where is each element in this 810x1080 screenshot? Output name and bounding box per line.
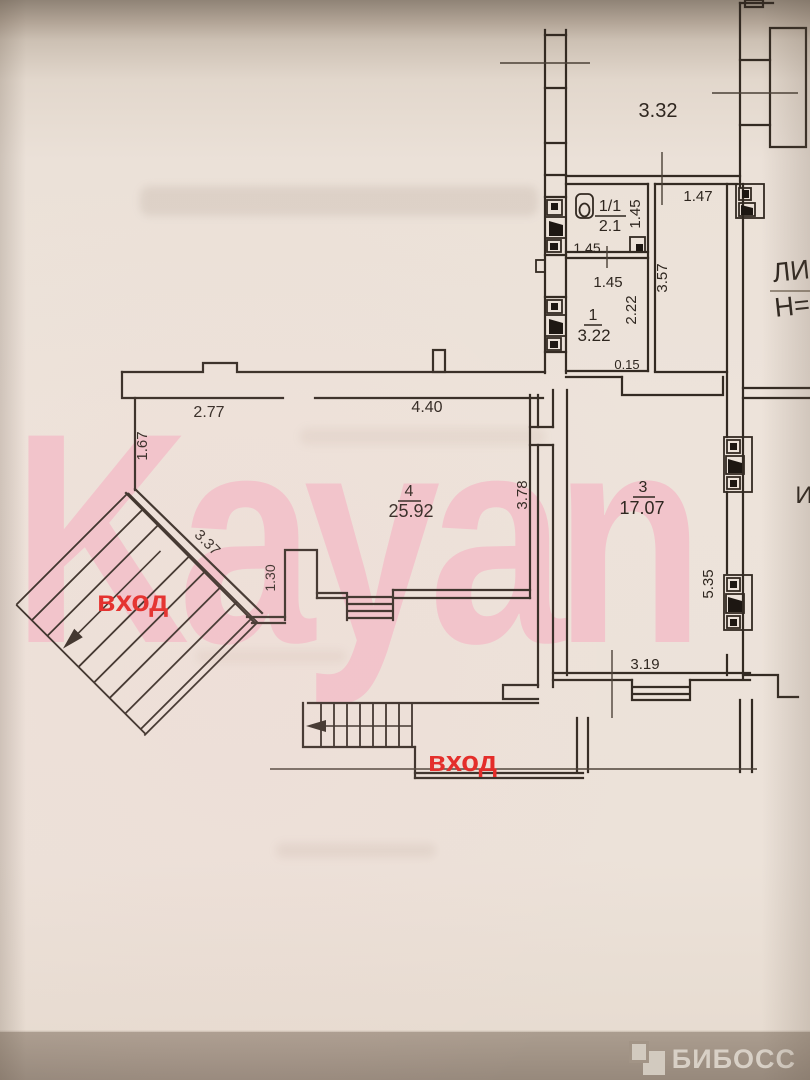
note-side: И bbox=[795, 482, 810, 509]
entrance-label-left: вход bbox=[97, 585, 168, 619]
floor-plan-scan: Kayan bbox=[0, 0, 810, 1080]
room-3-number: 3 bbox=[639, 479, 648, 496]
dim-room4-left: 1.67 bbox=[134, 431, 151, 460]
dim-room4-top-right: 4.40 bbox=[411, 399, 442, 416]
room-4-number: 4 bbox=[405, 483, 414, 500]
dim-right-strip-width: 1.47 bbox=[683, 188, 712, 205]
room-3-area: 17.07 bbox=[619, 498, 664, 518]
walls bbox=[122, 0, 810, 778]
dim-room4-right: 3.78 bbox=[514, 480, 531, 509]
dim-strip-height: 3.57 bbox=[654, 263, 671, 292]
dim-diagonal-wall: 3.37 bbox=[191, 526, 224, 559]
dim-top-hall-width: 3.32 bbox=[639, 100, 678, 122]
room-wc-number: 1/1 bbox=[599, 198, 621, 215]
room-4-area: 25.92 bbox=[388, 501, 433, 521]
dim-pier-height: 1.30 bbox=[262, 564, 278, 591]
room-1-number: 1 bbox=[589, 307, 598, 324]
dim-room1-top: 1.45 bbox=[593, 274, 622, 291]
toilet-icon bbox=[576, 194, 593, 218]
entrance-stairs-bottom-icon bbox=[306, 703, 412, 747]
room-wc-area: 2.1 bbox=[599, 218, 621, 235]
stairs-arrow-icon bbox=[306, 720, 326, 732]
room-1-area: 3.22 bbox=[577, 326, 610, 345]
floor-plan-drawing: 3.32 1.47 1.45 1.45 1.45 2.22 3.57 0.15 … bbox=[0, 0, 810, 1080]
note-line1: ЛИ bbox=[771, 254, 810, 288]
dimension-ticks bbox=[270, 63, 798, 769]
dim-small-offset: 0.15 bbox=[614, 357, 639, 372]
biboss-logo-icon bbox=[632, 1044, 665, 1075]
sink-icon bbox=[630, 237, 645, 252]
handwritten-notes: ЛИ Н= И bbox=[770, 254, 810, 509]
dim-wc-right: 1.45 bbox=[627, 199, 644, 228]
dim-room1-right: 2.22 bbox=[623, 295, 640, 324]
vent-shaft-left-wall bbox=[536, 200, 566, 350]
biboss-logo-text: БИБОСС bbox=[672, 1044, 796, 1075]
dim-room3-right: 5.35 bbox=[700, 569, 717, 598]
dim-room3-bottom: 3.19 bbox=[630, 656, 659, 673]
dim-wc-bottom: 1.45 bbox=[573, 240, 600, 256]
note-line2: Н= bbox=[773, 289, 810, 323]
dim-room4-top-left: 2.77 bbox=[193, 404, 224, 421]
biboss-logo: БИБОСС bbox=[632, 1044, 796, 1075]
entrance-label-bottom: вход bbox=[428, 746, 497, 779]
